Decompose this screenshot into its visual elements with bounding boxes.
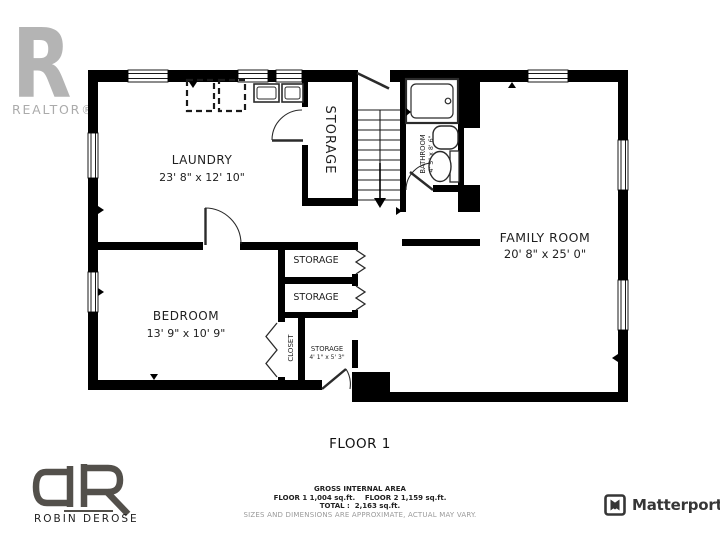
matterport-logo: Matterport xyxy=(604,494,720,516)
shower-drain xyxy=(445,98,451,104)
bifold-door-storage-upper xyxy=(356,250,365,274)
bifold-door-closet xyxy=(266,323,277,377)
agent-logo-icon xyxy=(36,464,128,514)
label-bedroom-dims: 13' 9" x 10' 9" xyxy=(147,327,226,340)
pony-wall xyxy=(402,239,480,246)
agent-logo: ROBIN DEROSE xyxy=(0,450,170,530)
laundry-door-arc xyxy=(272,110,302,140)
label-family-room: FAMILY ROOM xyxy=(500,230,591,245)
entry-door-leaf xyxy=(357,73,389,89)
bedroom-door-arc xyxy=(205,208,241,244)
label-storage-main: STORAGE xyxy=(322,106,337,175)
matterport-label: Matterport xyxy=(632,496,720,514)
storage-exterior-door-arc xyxy=(346,369,350,389)
staircase xyxy=(358,110,400,208)
label-storage-upper: STORAGE xyxy=(293,255,338,266)
bathroom-sink xyxy=(433,126,458,149)
label-storage-small-dims: 4' 1" x 5' 3" xyxy=(309,354,345,361)
stairs-down-arrow-icon xyxy=(374,198,386,208)
agent-name: ROBIN DEROSE xyxy=(34,513,139,525)
label-laundry-dims: 23' 8" x 12' 10" xyxy=(159,171,245,184)
label-bathroom: BATHROOM xyxy=(419,134,427,173)
label-storage-small: STORAGE xyxy=(311,345,343,353)
bathroom-door-leaf xyxy=(410,172,433,190)
storage-exterior-door-leaf xyxy=(322,369,346,389)
matterport-cube-icon xyxy=(604,494,626,516)
label-bedroom: BEDROOM xyxy=(153,309,219,323)
label-storage-lower: STORAGE xyxy=(293,292,338,303)
label-bathroom-dims: 4' 5" x 8' 6" xyxy=(428,135,435,172)
room-labels: LAUNDRY 23' 8" x 12' 10" STORAGE BATHROO… xyxy=(147,106,591,362)
label-family-room-dims: 20' 8" x 25' 0" xyxy=(504,247,586,261)
bifold-door-storage-lower xyxy=(356,286,365,310)
label-closet: CLOSET xyxy=(287,334,295,362)
floorplan-page: R REALTOR® xyxy=(0,0,720,540)
fireplace-block xyxy=(352,372,390,402)
dryer-symbol xyxy=(219,80,245,111)
label-laundry: LAUNDRY xyxy=(172,153,233,167)
